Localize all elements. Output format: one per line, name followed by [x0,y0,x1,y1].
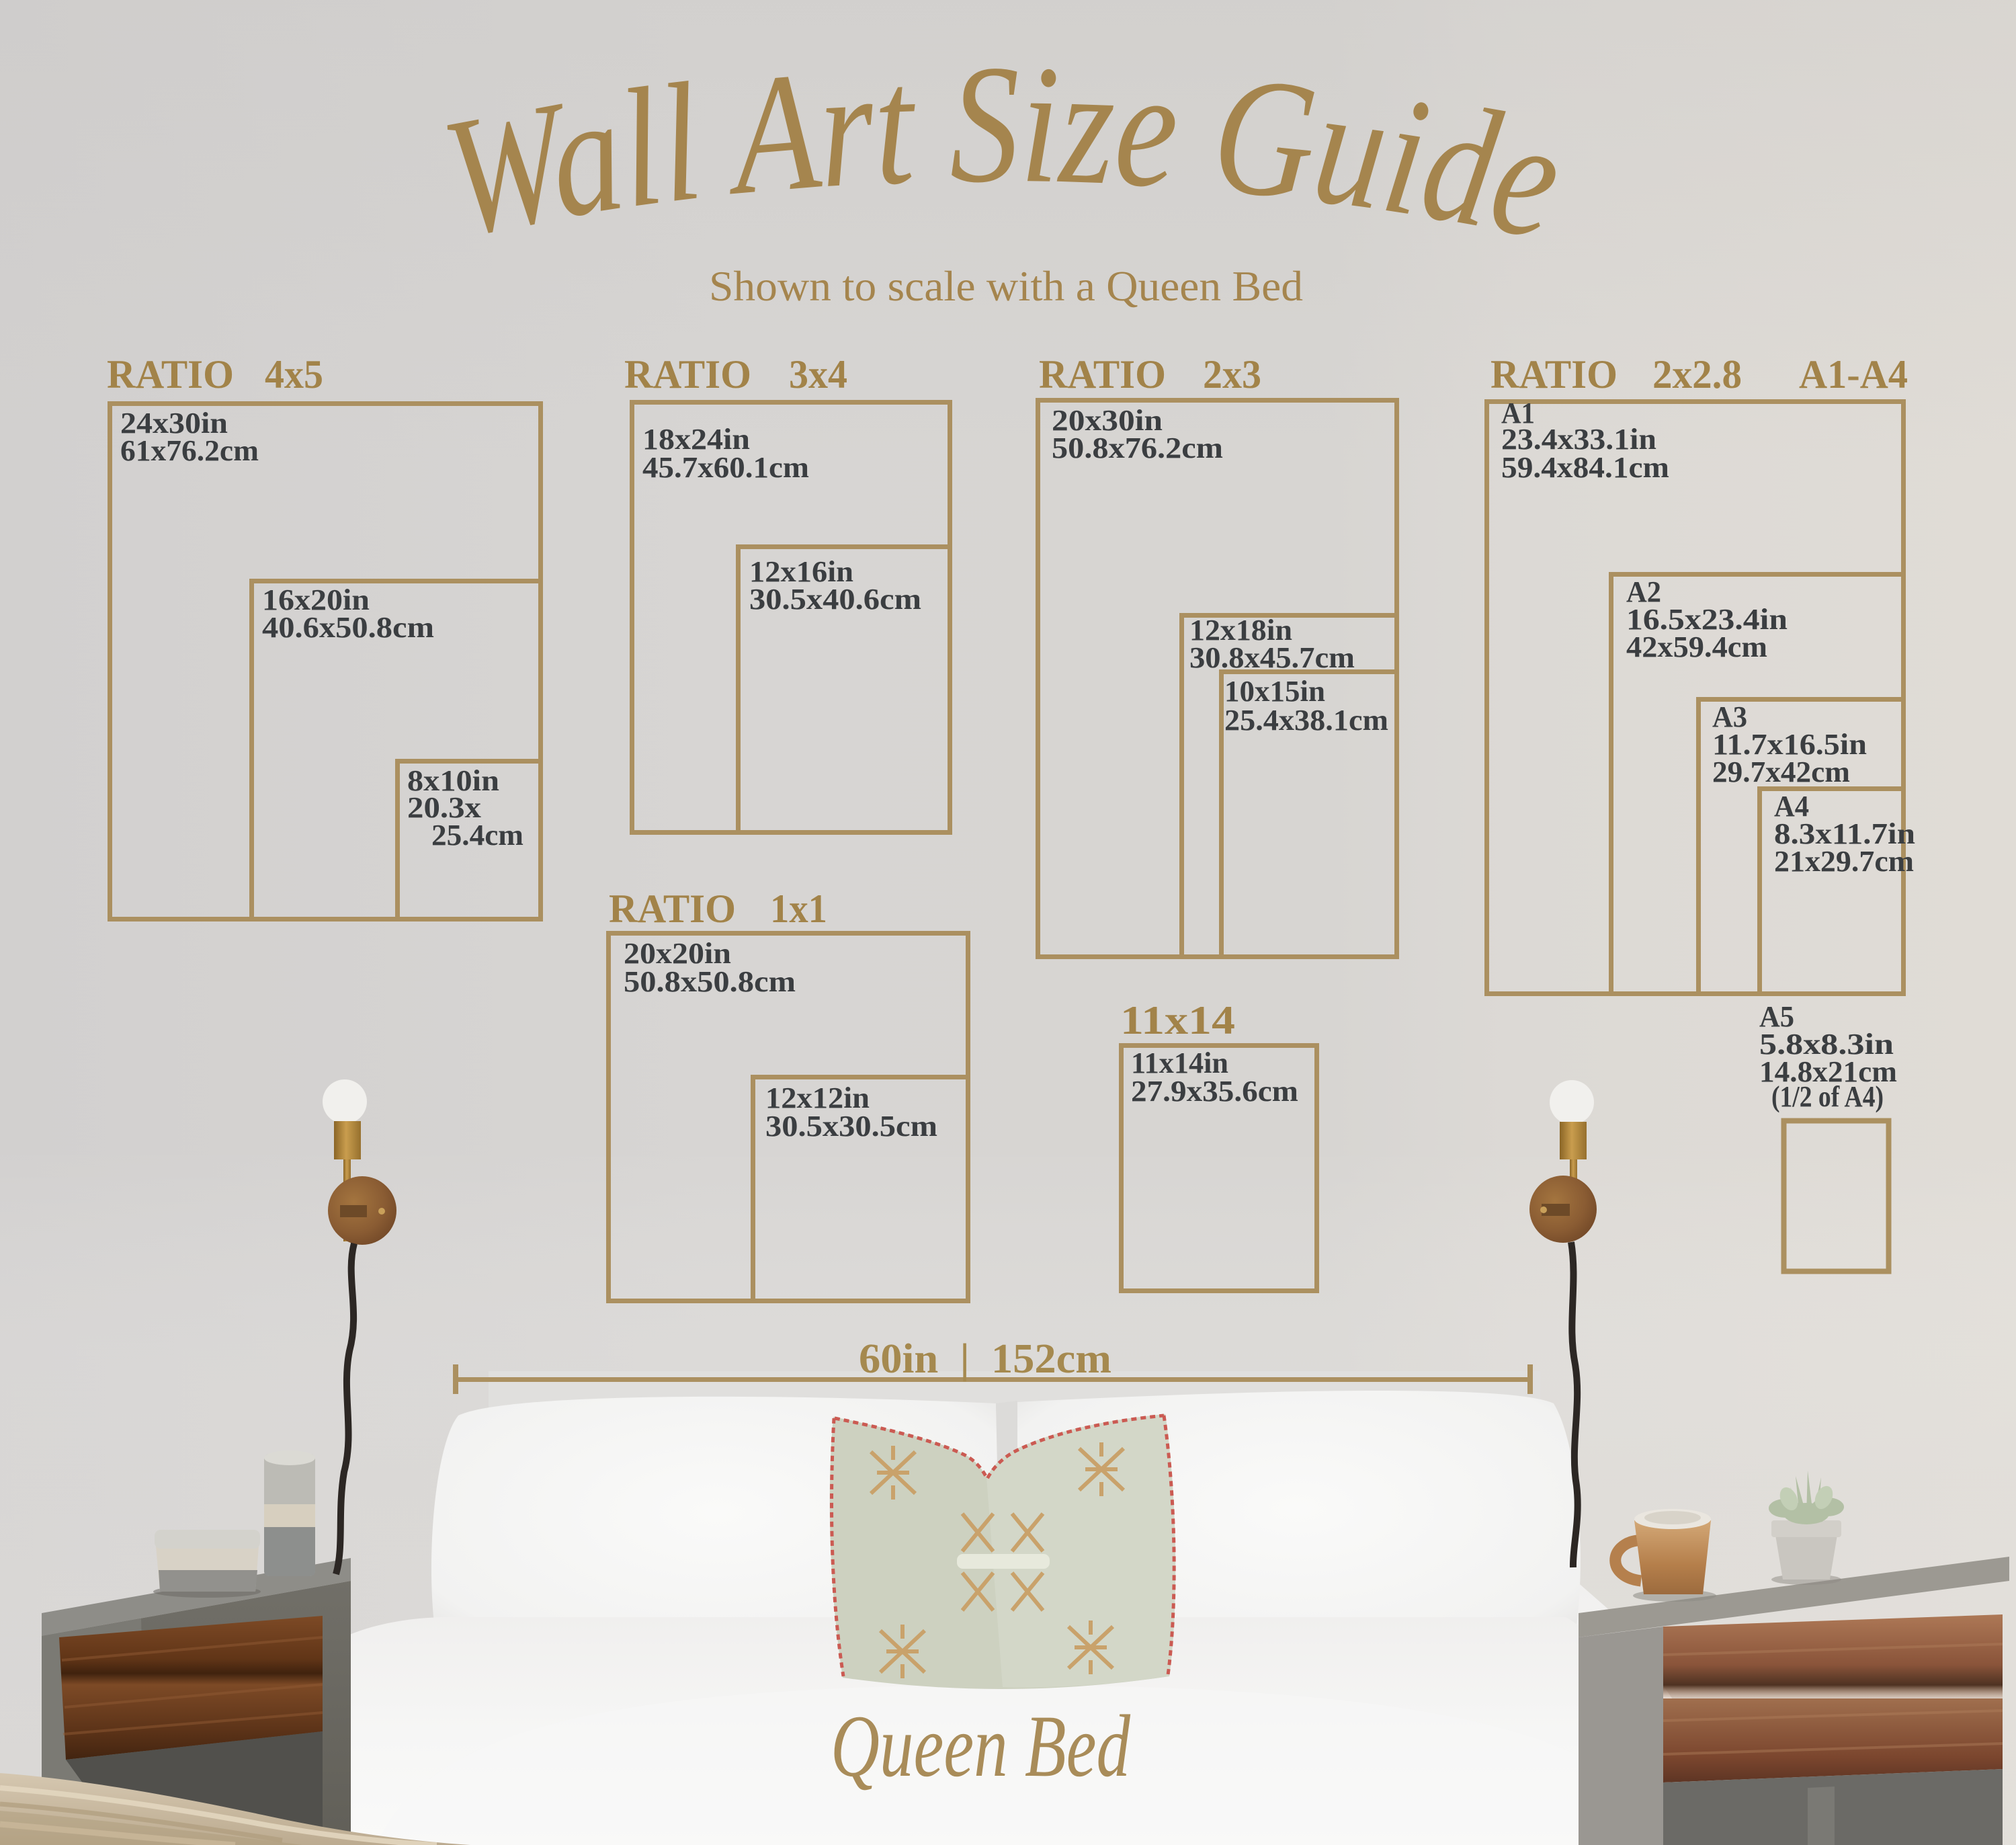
svg-text:(1/2 of A4): (1/2 of A4) [1771,1080,1884,1113]
svg-text:30.5x40.6cm: 30.5x40.6cm [749,583,921,616]
svg-text:30.8x45.7cm: 30.8x45.7cm [1189,641,1355,674]
svg-text:RATIO: RATIO [1490,352,1618,397]
svg-text:4x5: 4x5 [265,352,323,397]
svg-text:45.7x60.1cm: 45.7x60.1cm [642,451,809,484]
svg-text:2x2.8: 2x2.8 [1652,352,1742,397]
svg-text:50.8x50.8cm: 50.8x50.8cm [624,965,796,998]
svg-text:RATIO: RATIO [624,352,751,397]
svg-text:A1-A4: A1-A4 [1799,352,1908,397]
svg-text:Shown to scale with a Queen Be: Shown to scale with a Queen Bed [709,262,1303,310]
svg-text:50.8x76.2cm: 50.8x76.2cm [1052,432,1223,464]
svg-text:RATIO: RATIO [107,352,234,397]
svg-text:11x14: 11x14 [1120,998,1235,1042]
svg-text:30.5x30.5cm: 30.5x30.5cm [765,1110,937,1143]
svg-text:21x29.7cm: 21x29.7cm [1774,845,1914,878]
svg-text:27.9x35.6cm: 27.9x35.6cm [1131,1075,1298,1108]
svg-text:2x3: 2x3 [1203,352,1261,397]
svg-text:29.7x42cm: 29.7x42cm [1712,755,1850,788]
svg-text:3x4: 3x4 [789,352,847,397]
svg-text:RATIO: RATIO [609,887,736,931]
svg-text:RATIO: RATIO [1039,352,1166,397]
svg-text:42x59.4cm: 42x59.4cm [1626,630,1767,663]
svg-text:40.6x50.8cm: 40.6x50.8cm [262,611,434,644]
svg-text:60in | 152cm: 60in | 152cm [859,1336,1111,1382]
svg-text:61x76.2cm: 61x76.2cm [120,434,259,467]
svg-text:10x15in: 10x15in [1224,675,1325,708]
svg-text:59.4x84.1cm: 59.4x84.1cm [1501,451,1669,484]
svg-text:Queen Bed: Queen Bed [831,1696,1131,1795]
svg-text:25.4cm: 25.4cm [431,819,523,852]
svg-text:25.4x38.1cm: 25.4x38.1cm [1224,704,1388,737]
svg-text:1x1: 1x1 [770,887,827,931]
